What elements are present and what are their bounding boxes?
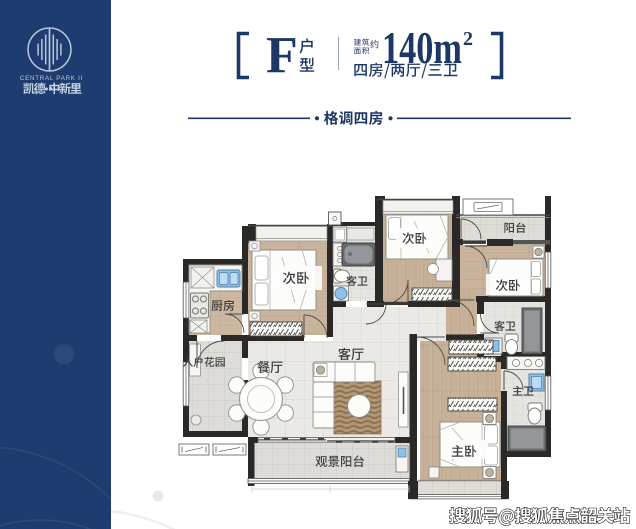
svg-text:CENTRAL PARK II: CENTRAL PARK II (20, 75, 83, 82)
svg-text:2: 2 (463, 28, 473, 50)
svg-text:F: F (266, 27, 298, 84)
